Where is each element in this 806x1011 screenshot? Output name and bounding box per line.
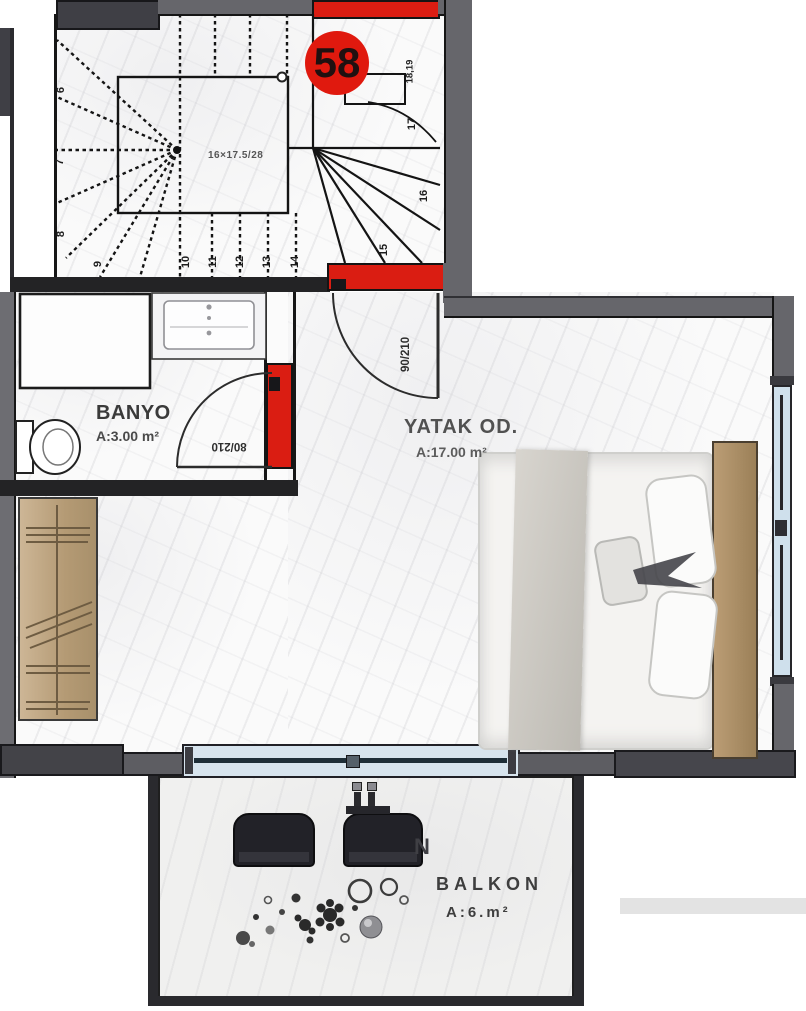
balcony-wall-left: [148, 776, 158, 1006]
balcony-area: A:6.m²: [446, 904, 511, 921]
stair-number: 14: [289, 256, 301, 268]
stair-number: 16: [418, 190, 430, 202]
staircase-floor: [56, 14, 444, 278]
window-mullion-top: [780, 395, 783, 510]
door-bathroom-jamb: [266, 363, 293, 469]
wall-staircase-bottom: [10, 277, 330, 292]
balcony-sliding-door: [182, 744, 520, 778]
stair-number: 7: [54, 159, 66, 165]
wall-bottom-right: [518, 752, 616, 776]
sliding-door-cap-left: [185, 747, 193, 774]
wall-bottom-right-dark: [614, 750, 796, 778]
bedroom-area: A:17.00 m²: [416, 444, 487, 460]
wall-top-left: [158, 0, 314, 16]
bedroom-name: YATAK OD.: [404, 416, 518, 439]
bed-headboard: [712, 441, 758, 759]
balcony-chair-right: [343, 813, 423, 867]
stair-number: 15: [378, 244, 390, 256]
floor-plan: 58 BANYO A:3.00 m² YATAK OD. A:17.00 m² …: [0, 0, 806, 1011]
stair-number: 11: [207, 256, 219, 268]
door-entry-hinge: [331, 279, 346, 289]
bathroom-area: A:3.00 m²: [96, 428, 159, 444]
bedroom-door-size: 90/210: [400, 337, 412, 372]
balcony-stand-knob-left: [352, 782, 362, 791]
stair-number: 6: [55, 87, 67, 93]
bed-pillow-top: [644, 473, 719, 590]
wall-right-staircase: [444, 0, 472, 300]
bedroom-window: [770, 376, 796, 686]
wall-bottom-left-dark: [0, 744, 124, 776]
balcony-letter: N: [414, 834, 430, 860]
unit-number-badge: 58: [305, 31, 369, 95]
balcony-stand-top: [346, 806, 390, 814]
bathroom-door-size: 80/210: [196, 440, 262, 452]
stair-number: 18,19: [404, 60, 415, 84]
bed-pillow-bottom: [647, 589, 720, 701]
neighbor-slab-band: [620, 898, 806, 914]
chair-seat: [349, 852, 417, 862]
stair-notation: 16×17.5/28: [208, 150, 263, 161]
wall-bathroom-bottom: [0, 480, 298, 496]
stair-number: 8: [55, 231, 67, 237]
stair-number: 10: [180, 256, 192, 268]
window-handle: [775, 520, 787, 536]
wardrobe: [18, 497, 98, 721]
chair-seat: [239, 852, 309, 862]
wall-staircase-left-line: [54, 14, 57, 278]
door-bathroom-hinge: [269, 377, 280, 391]
window-cap-top: [770, 376, 794, 385]
bed-blanket: [508, 449, 588, 751]
stair-number: 12: [234, 256, 246, 268]
wall-bedroom-top: [444, 296, 794, 318]
balcony-name: BALKON: [436, 874, 543, 895]
balcony-stand-knob-right: [367, 782, 377, 791]
stair-number: 13: [261, 256, 273, 268]
wall-left-line: [10, 28, 14, 278]
bathroom-name: BANYO: [96, 402, 171, 425]
wall-left-block: [0, 28, 10, 116]
stair-number: 17: [406, 118, 418, 130]
door-top-opening: [312, 0, 440, 19]
window-mullion-bottom: [780, 545, 783, 660]
door-entry: [327, 263, 445, 291]
wall-bathroom-right-b: [293, 292, 296, 480]
wall-right-upper: [772, 296, 794, 380]
balcony-wall-right: [574, 776, 584, 1006]
balcony-wall-bottom: [148, 996, 584, 1006]
unit-number: 58: [314, 39, 361, 87]
sliding-door-cap-right: [508, 747, 516, 774]
balcony-chair-left: [233, 813, 315, 867]
wall-left-main: [0, 292, 16, 778]
sliding-door-handle: [346, 755, 360, 768]
stair-number: 9: [92, 261, 104, 267]
wall-top-dark-block: [56, 0, 160, 30]
wall-bottom-left: [124, 752, 184, 776]
